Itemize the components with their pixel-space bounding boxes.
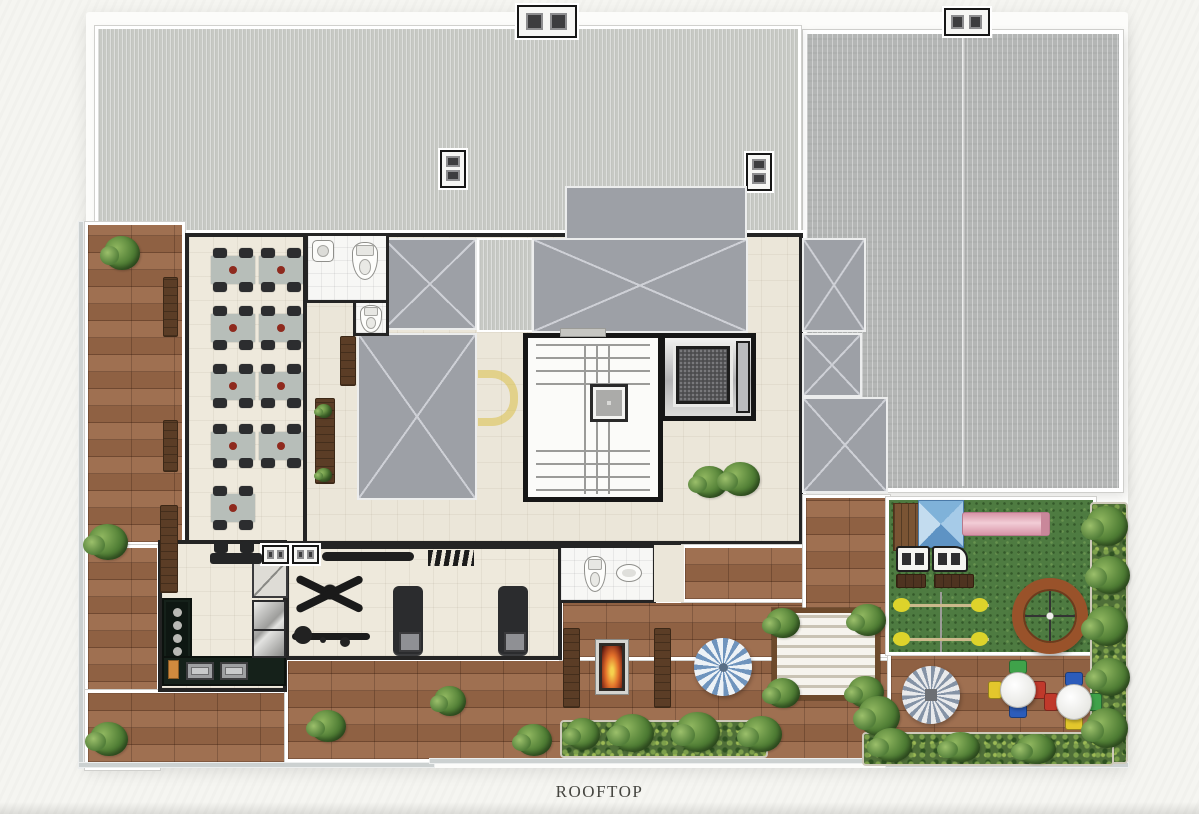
planter-shrub [516,724,552,756]
roof-vent-icon [944,8,990,36]
plan-title: ROOFTOP [0,782,1199,802]
treadmill [393,586,423,656]
pantry-cabinet [252,560,288,598]
planter-shrub [612,714,654,752]
hedge-shrub [1086,606,1128,646]
hall-strip [654,545,684,602]
pergola-vine [766,608,800,638]
deck-bench [160,505,178,593]
sideboard-plant [316,404,332,418]
cooktop [166,602,188,658]
roof-patch [477,238,534,332]
planter-shrub [434,686,466,716]
sideboard-plant [316,468,332,482]
hedge-shrub [1090,658,1130,696]
dumbbell-rack [428,550,474,566]
kitchen-chair [214,541,228,553]
dining-table [208,424,258,468]
roof-void [802,333,862,397]
glass-railing [430,759,888,763]
play-bench [934,574,974,588]
stair-landing [590,384,628,422]
kitchen-chair [240,541,254,553]
glass-railing [79,222,83,768]
fridge [252,600,286,658]
wall-oven [262,545,289,564]
table-top [1056,684,1092,720]
play-slide [962,512,1050,536]
sink [616,564,642,582]
dining-table [256,248,306,292]
planter-shrub [566,718,600,750]
hedge-shrub [1090,556,1130,594]
planter-shrub [310,710,346,742]
fire-pit [596,640,628,694]
dining-table [208,306,258,350]
wall-oven [292,545,319,564]
pergola-vine [766,678,800,708]
carousel [1012,578,1088,654]
page-bottom-shadow [0,802,1199,814]
kitchen-sink [186,662,214,680]
round-table-set [988,660,1046,718]
multi-gym-machine [296,568,364,616]
deck-left [85,222,185,545]
page: ROOFTOP [0,0,1199,814]
umbrella [694,638,752,696]
planter-shrub [872,728,912,762]
roof-void [802,238,866,332]
dining-table [208,248,258,292]
roof-void [565,186,747,242]
stair-door [560,328,606,337]
hedge-shrub [1086,506,1128,546]
elevator-car [676,346,730,404]
pergola-vine [850,604,886,636]
dining-table [208,486,258,530]
umbrella [902,666,960,724]
dining-table [256,424,306,468]
cutting-board [168,660,179,679]
console-table [340,336,356,386]
firepit-bench [654,628,671,708]
swing-set [893,592,989,652]
roof-void [357,333,477,500]
deck-bench [163,420,178,472]
roof-void [802,397,888,493]
play-train-car [932,546,968,572]
firepit-bench [563,628,580,708]
kitchen-sink [220,662,248,680]
glass-railing [79,763,434,767]
barbell-rack [322,552,414,561]
sink [312,240,334,262]
treadmill [498,586,528,656]
roof-right-ridge [962,36,966,486]
elevator-panel [736,341,750,413]
dining-table [256,364,306,408]
hedge-shrub [1086,708,1128,748]
planter-shrub [90,722,128,756]
dining-table [256,306,306,350]
roof-void [532,238,748,333]
planter-shrub [676,712,720,752]
planter-shrub [722,462,760,496]
deck-bench [163,277,178,337]
floor-plan [0,0,1199,814]
planter-shrub [88,524,128,560]
roof-vent-icon [517,5,577,38]
planter-shrub [104,236,140,270]
play-tent [918,500,964,548]
roof-vent-icon [440,150,466,188]
roof-void [383,238,477,330]
roof-vent-icon [746,153,772,191]
planter-shrub [942,732,980,762]
kitchen-table [210,553,262,564]
dining-table [208,364,258,408]
weight-bench [292,620,370,652]
play-train-car [896,546,930,572]
play-bench [896,574,926,588]
play-platform [893,503,921,551]
table-top [1000,672,1036,708]
planter-shrub [742,716,782,752]
planter-shrub [1016,734,1056,764]
